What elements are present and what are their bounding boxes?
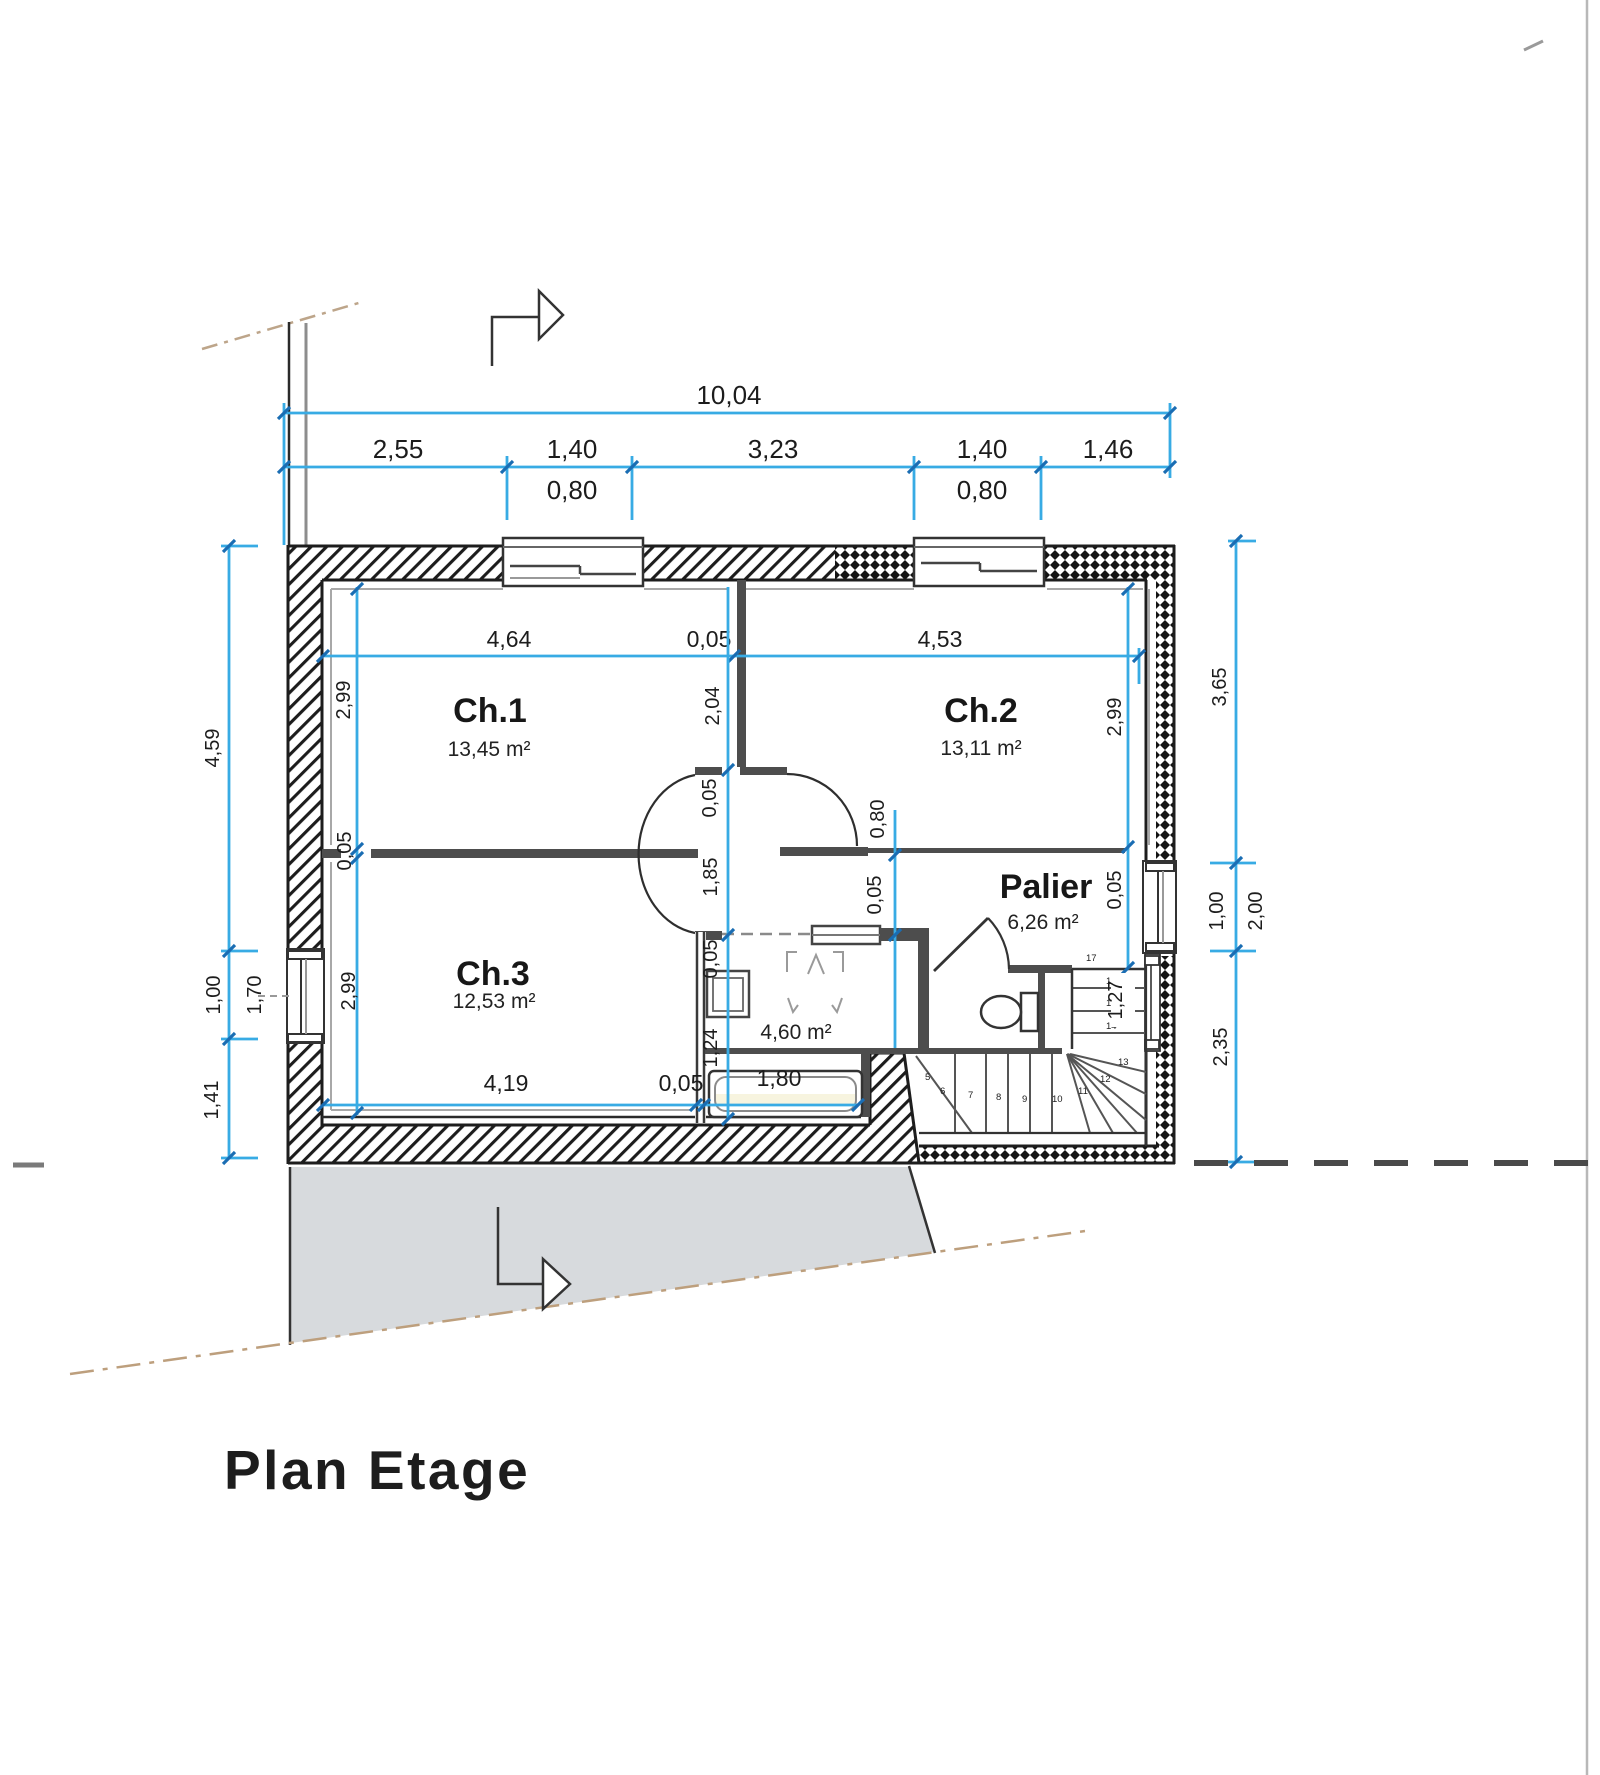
svg-text:2,35: 2,35 bbox=[1210, 1028, 1232, 1067]
svg-text:0,80: 0,80 bbox=[867, 800, 889, 839]
svg-text:11: 11 bbox=[1078, 1086, 1088, 1097]
svg-text:1,24: 1,24 bbox=[700, 1029, 722, 1068]
svg-text:0,05: 0,05 bbox=[334, 832, 356, 871]
svg-text:1,00: 1,00 bbox=[203, 976, 225, 1015]
svg-text:4,59: 4,59 bbox=[202, 729, 224, 768]
svg-text:1,85: 1,85 bbox=[700, 858, 722, 897]
svg-text:10: 10 bbox=[1052, 1094, 1063, 1105]
svg-text:4,60 m²: 4,60 m² bbox=[760, 1021, 831, 1044]
svg-text:4,19: 4,19 bbox=[484, 1070, 529, 1096]
svg-text:0,05: 0,05 bbox=[864, 876, 886, 915]
svg-text:4,53: 4,53 bbox=[918, 626, 963, 652]
svg-text:12: 12 bbox=[1100, 1074, 1111, 1085]
svg-text:1,70: 1,70 bbox=[244, 976, 266, 1015]
svg-text:6,26 m²: 6,26 m² bbox=[1007, 911, 1078, 934]
svg-text:4,64: 4,64 bbox=[487, 626, 532, 652]
svg-text:10,04: 10,04 bbox=[696, 380, 761, 410]
svg-text:1,41: 1,41 bbox=[201, 1081, 223, 1120]
svg-text:12,53 m²: 12,53 m² bbox=[453, 990, 536, 1013]
svg-text:3,65: 3,65 bbox=[1209, 668, 1231, 707]
svg-text:Ch.2: Ch.2 bbox=[944, 692, 1018, 730]
svg-text:2,04: 2,04 bbox=[702, 687, 724, 726]
svg-text:1,80: 1,80 bbox=[757, 1065, 802, 1091]
svg-text:1,40: 1,40 bbox=[547, 434, 598, 464]
svg-text:1,46: 1,46 bbox=[1083, 434, 1134, 464]
svg-text:Ch.3: Ch.3 bbox=[456, 955, 530, 993]
svg-text:1,00: 1,00 bbox=[1206, 892, 1228, 931]
svg-text:0,05: 0,05 bbox=[700, 940, 722, 979]
svg-text:0,05: 0,05 bbox=[699, 779, 721, 818]
svg-text:1,40: 1,40 bbox=[957, 434, 1008, 464]
svg-text:13,45 m²: 13,45 m² bbox=[448, 738, 531, 761]
svg-text:2,99: 2,99 bbox=[1104, 698, 1126, 737]
svg-text:7: 7 bbox=[968, 1090, 973, 1101]
svg-text:17: 17 bbox=[1086, 953, 1097, 964]
svg-text:Plan Etage: Plan Etage bbox=[224, 1439, 530, 1501]
svg-text:2,00: 2,00 bbox=[1245, 892, 1267, 931]
svg-text:1,27: 1,27 bbox=[1105, 981, 1127, 1020]
svg-text:0,05: 0,05 bbox=[1104, 871, 1126, 910]
svg-text:0,05: 0,05 bbox=[659, 1070, 704, 1096]
svg-text:13: 13 bbox=[1118, 1057, 1129, 1068]
svg-text:0,05: 0,05 bbox=[687, 626, 732, 652]
svg-text:13,11 m²: 13,11 m² bbox=[940, 737, 1021, 760]
svg-text:2,55: 2,55 bbox=[373, 434, 424, 464]
svg-text:0,80: 0,80 bbox=[547, 475, 598, 505]
svg-text:Palier: Palier bbox=[1000, 868, 1093, 906]
svg-text:5: 5 bbox=[925, 1072, 930, 1083]
svg-text:0,80: 0,80 bbox=[957, 475, 1008, 505]
svg-text:Ch.1: Ch.1 bbox=[453, 692, 527, 730]
svg-text:9: 9 bbox=[1022, 1094, 1027, 1105]
svg-text:8: 8 bbox=[996, 1092, 1001, 1103]
svg-text:2,99: 2,99 bbox=[338, 972, 360, 1011]
svg-text:3,23: 3,23 bbox=[748, 434, 799, 464]
svg-text:6: 6 bbox=[940, 1086, 945, 1097]
svg-text:2,99: 2,99 bbox=[333, 681, 355, 720]
